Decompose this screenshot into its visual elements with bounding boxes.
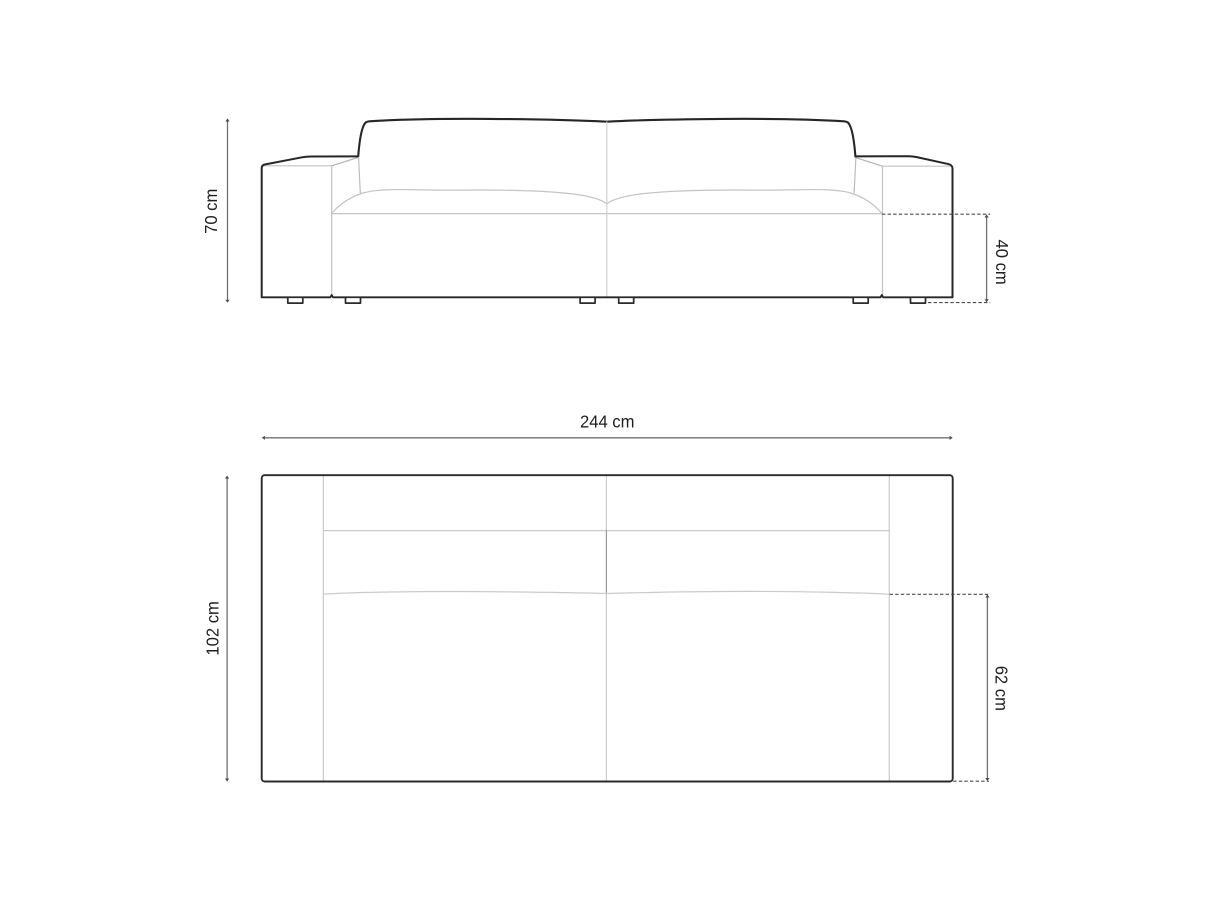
- svg-text:62 cm: 62 cm: [991, 666, 1010, 711]
- svg-text:40 cm: 40 cm: [992, 239, 1011, 284]
- svg-text:102 cm: 102 cm: [203, 601, 222, 655]
- svg-text:244 cm: 244 cm: [580, 412, 634, 431]
- svg-text:70 cm: 70 cm: [202, 189, 221, 234]
